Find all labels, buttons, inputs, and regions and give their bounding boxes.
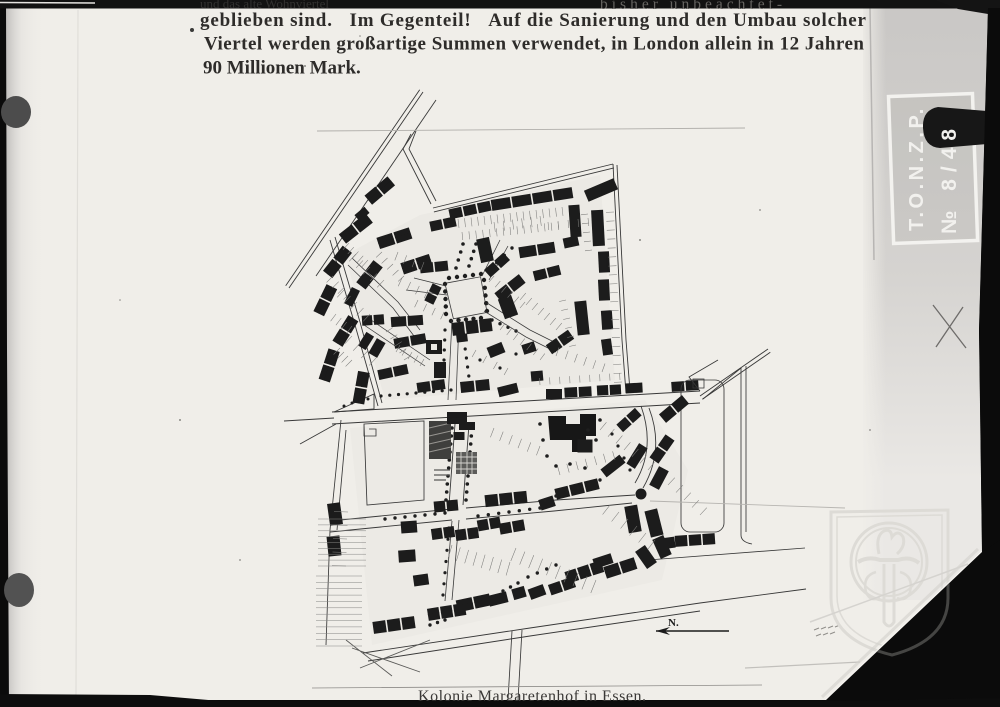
svg-text:T.O.N.Z.P.: T.O.N.Z.P. <box>906 105 928 231</box>
svg-text:Viertel werden großartige Summ: Viertel werden großartige Summen verwend… <box>204 34 864 55</box>
svg-text:№ 8/48: № 8/48 <box>938 122 961 234</box>
svg-text:90 Millionen Mark.: 90 Millionen Mark. <box>203 58 361 79</box>
svg-text:N.: N. <box>668 617 679 629</box>
svg-text:geblieben sind. Im Gegenteil: geblieben sind. Im Gegenteil! Auf die Sa… <box>200 10 867 31</box>
svg-text:und das alte Wohnviertel: und das alte Wohnviertel <box>200 0 329 11</box>
svg-text:bisher unbeachtet-: bisher unbeachtet- <box>600 0 786 13</box>
